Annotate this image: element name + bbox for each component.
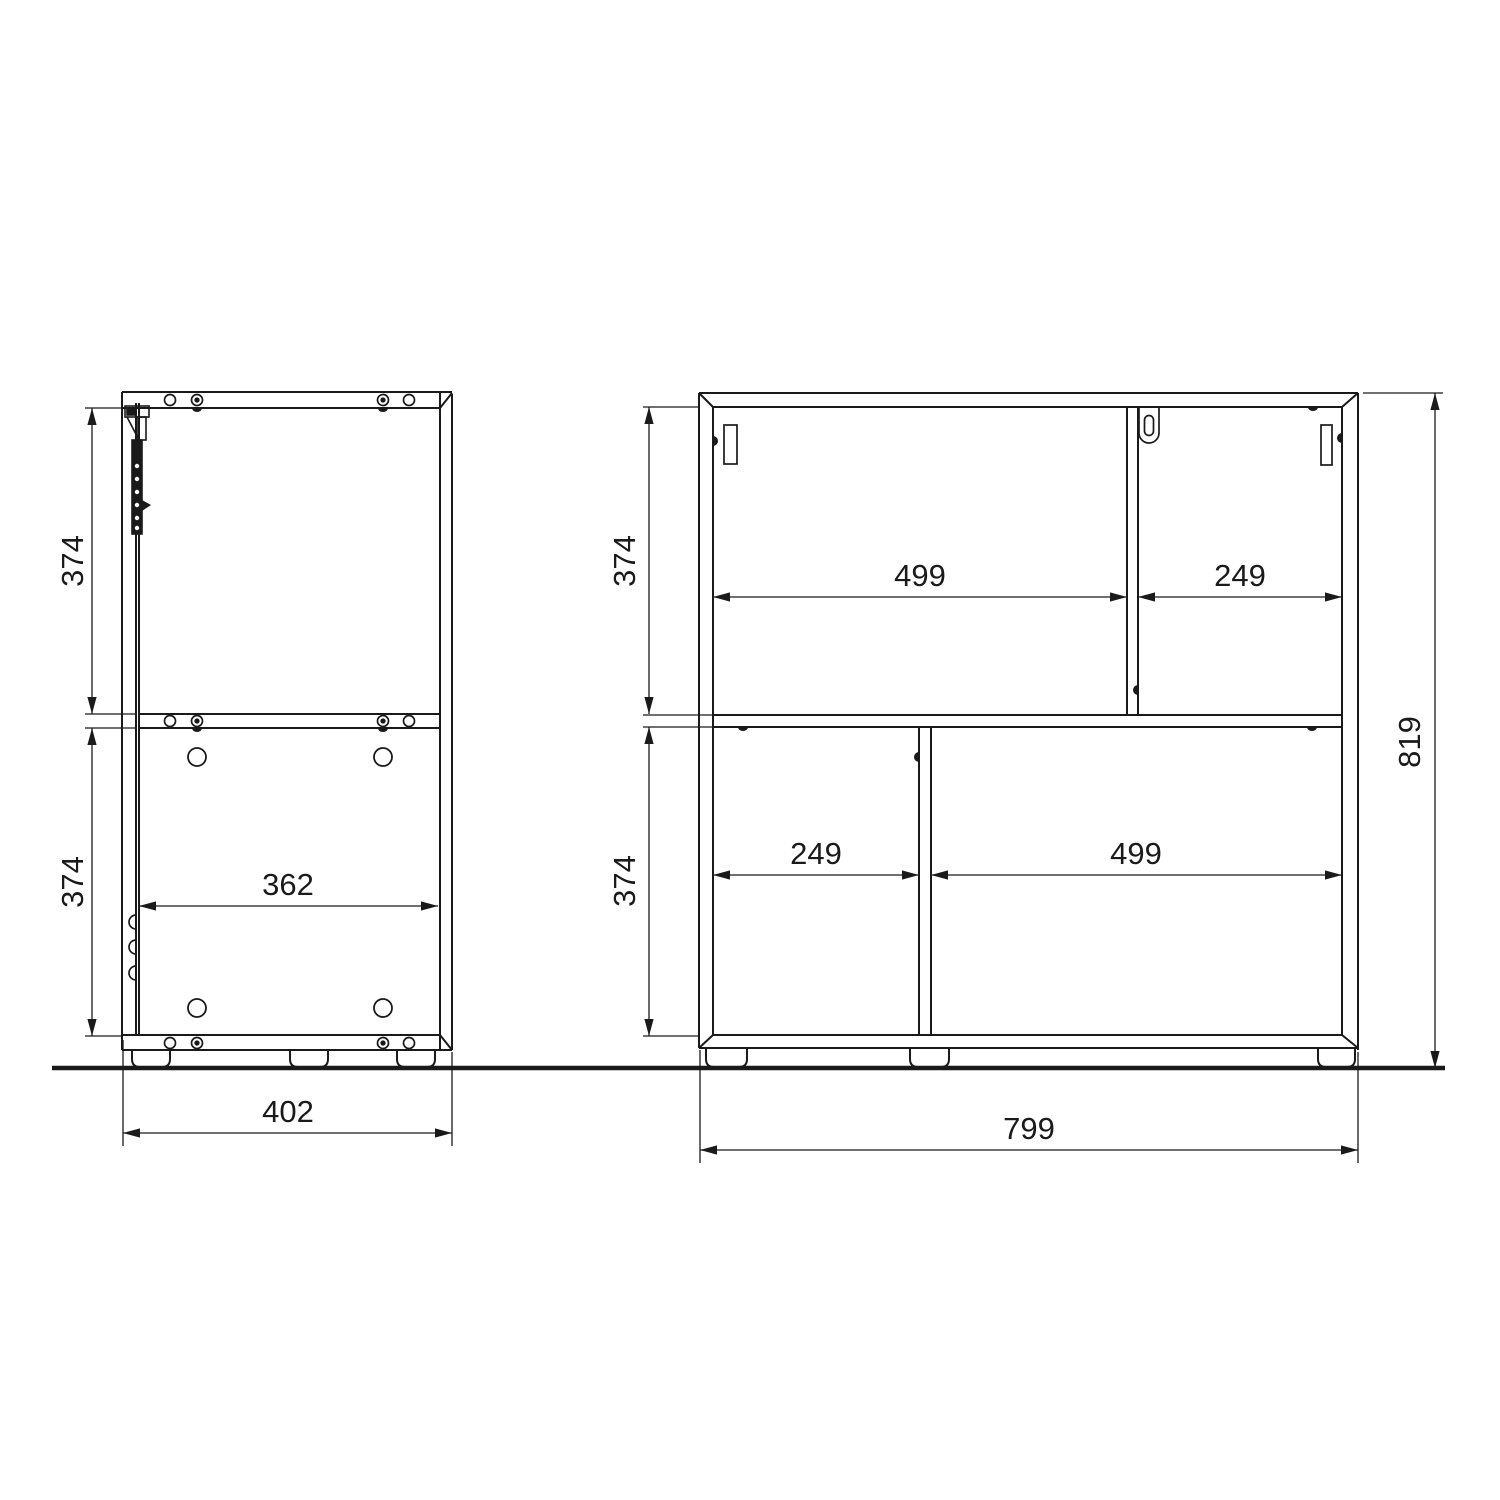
mount-slot-right — [1321, 425, 1332, 465]
front-bevel-top-right — [1342, 393, 1358, 407]
side-bottom-screws — [165, 1038, 415, 1049]
side-dim-inner-width-label: 362 — [262, 867, 314, 902]
side-foot-left — [132, 1050, 170, 1067]
mount-slot-left — [724, 425, 737, 464]
front-dim-top-height-label: 374 — [607, 535, 642, 587]
side-dim-overall-width-label: 402 — [262, 1094, 314, 1129]
front-dim-overall-height-label: 819 — [1392, 716, 1427, 768]
side-shelf-screws — [165, 716, 415, 727]
front-dim-top-right-width-label: 249 — [1214, 558, 1266, 593]
front-foot-left — [706, 1048, 747, 1067]
side-view — [122, 392, 452, 1067]
technical-drawing-page: 374 374 362 402 — [0, 0, 1500, 1500]
front-view — [699, 393, 1358, 1067]
side-dim-bottom-height-label: 374 — [55, 856, 90, 908]
technical-drawing: 374 374 362 402 — [0, 0, 1500, 1500]
side-top-screws — [165, 395, 415, 406]
front-foot-middle — [910, 1048, 949, 1067]
front-dim-top-left-width-label: 499 — [894, 558, 946, 593]
side-bottom-bevel — [440, 1035, 452, 1050]
front-bevel-bottom-left — [699, 1035, 713, 1048]
front-bevel-bottom-right — [1342, 1035, 1358, 1048]
side-top-bevel — [440, 393, 452, 408]
front-dim-bottom-right-width-label: 499 — [1110, 836, 1162, 871]
front-foot-right — [1318, 1048, 1355, 1067]
front-bevel-top-left — [699, 393, 713, 407]
side-hinge-cup-bumps — [129, 915, 136, 980]
keyhole-bracket-icon — [1139, 407, 1159, 443]
side-dim-top-height-label: 374 — [55, 535, 90, 587]
side-dowel-marks — [192, 408, 388, 732]
front-dim-bottom-height-label: 374 — [607, 855, 642, 907]
side-foot-middle — [290, 1050, 328, 1067]
hinge-icon — [125, 406, 151, 534]
side-foot-right — [397, 1050, 435, 1067]
front-dim-bottom-left-width-label: 249 — [790, 836, 842, 871]
front-dim-overall-width-label: 799 — [1003, 1111, 1055, 1146]
